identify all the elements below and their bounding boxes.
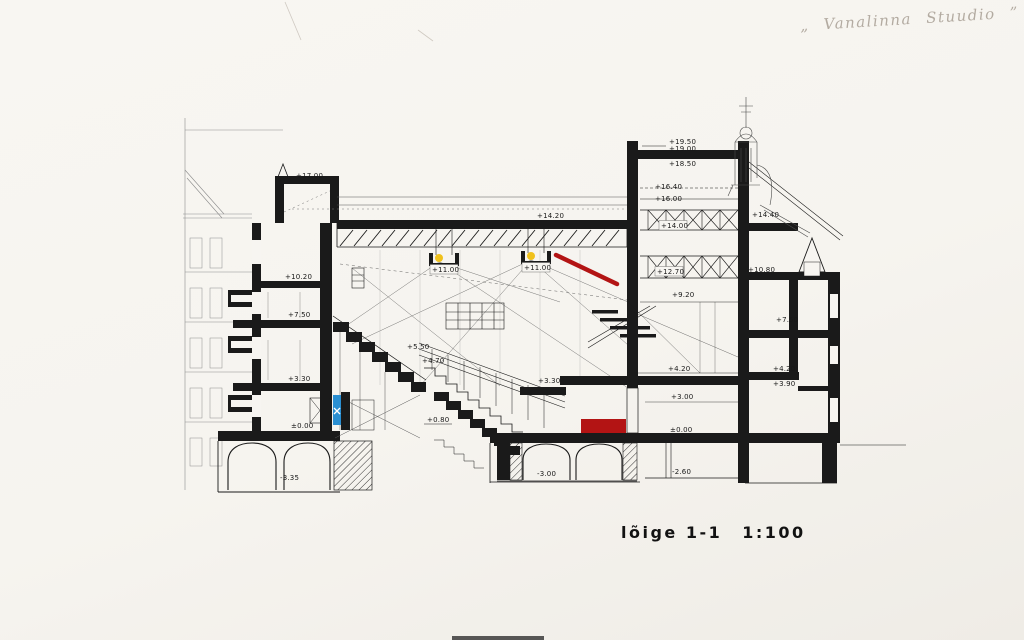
elevation-label: +16.40 [655, 183, 682, 191]
drawing-caption: lõige 1-1 1:100 [621, 523, 806, 542]
elevation-labels: +17.00+10.20+7.50+3.30±0.00-3.35+14.20+1… [280, 138, 798, 482]
elevation-label: +12.70 [657, 268, 684, 276]
elevation-label: +4.20 [668, 365, 690, 373]
caption-scale: 1:100 [742, 523, 805, 542]
red-stage-marker [581, 419, 626, 433]
pencil-marks [285, 2, 433, 41]
bottom-edge-mark [452, 636, 544, 640]
red-marker-line [556, 255, 617, 284]
elevation-label: +14.40 [752, 211, 779, 219]
section-drawing: +17.00+10.20+7.50+3.30±0.00-3.35+14.20+1… [0, 0, 1024, 640]
balcony-grid [352, 268, 504, 329]
elevation-label: +10.20 [285, 273, 312, 281]
elevation-label: +14.00 [661, 222, 688, 230]
elevation-label: +0.80 [427, 416, 449, 424]
elevation-label: ±0.00 [670, 426, 692, 434]
elevation-label: +4.20 [773, 365, 795, 373]
blue-shaft-marker [333, 395, 341, 425]
stage-light-dot [435, 254, 443, 262]
elevation-label: +3.90 [773, 380, 795, 388]
elevation-label: +5.50 [407, 343, 429, 351]
stage-light-dot [527, 252, 535, 260]
elevation-label: +19.00 [669, 145, 696, 153]
elevation-label: +7.50 [288, 311, 310, 319]
elevation-label: +3.30 [288, 375, 310, 383]
hall-roof-truss [337, 197, 627, 247]
elevation-label: +3.30 [538, 377, 560, 385]
elevation-label: -2.60 [672, 468, 691, 476]
elevation-label: +14.20 [537, 212, 564, 220]
light-batten-2 [521, 229, 551, 264]
elevation-label: +3.00 [671, 393, 693, 401]
elevation-label: +4.70 [422, 357, 444, 365]
elevation-label: ±0.00 [291, 422, 313, 430]
left-block [218, 164, 626, 441]
elevation-label: +17.00 [296, 172, 323, 180]
elevation-label: +10.80 [748, 266, 775, 274]
caption-title: lõige 1-1 [621, 523, 722, 542]
tiered-seating [333, 322, 426, 392]
elevation-label: +7.50 [776, 316, 798, 324]
elevation-label: +16.00 [655, 195, 682, 203]
elevation-label: -3.00 [537, 470, 556, 478]
right-stepped-platform [588, 306, 656, 348]
elevation-label: -3.35 [280, 474, 299, 482]
fly-tower [520, 141, 749, 433]
elevation-label: +11.00 [524, 264, 551, 272]
paper-background: +17.00+10.20+7.50+3.30±0.00-3.35+14.20+1… [0, 0, 1024, 640]
left-basement-vaults [218, 441, 372, 492]
sightlines [340, 260, 628, 388]
elevation-label: +11.00 [432, 266, 459, 274]
elevation-label: +9.20 [672, 291, 694, 299]
elevation-label: +18.50 [669, 160, 696, 168]
